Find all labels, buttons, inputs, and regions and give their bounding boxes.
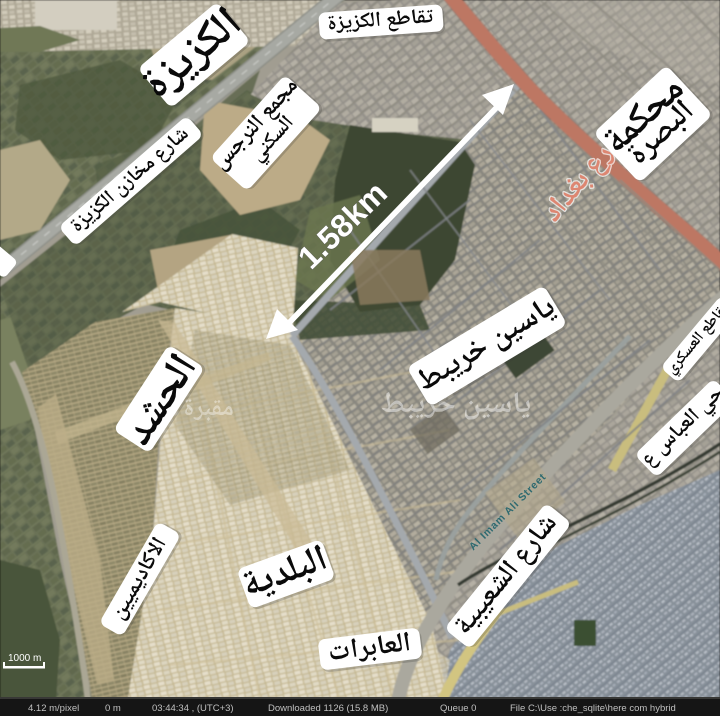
svg-text:1000 m: 1000 m (8, 653, 41, 664)
svg-text:Queue 0: Queue 0 (440, 703, 476, 714)
svg-text:03:44:34 , (UTC+3): 03:44:34 , (UTC+3) (152, 703, 234, 714)
svg-text:4.12 m/pixel: 4.12 m/pixel (28, 703, 79, 714)
svg-text:0 m: 0 m (105, 703, 121, 714)
svg-text:File C:\Use :che_sqlite\here: File C:\Use :che_sqlite\here com hybrid (510, 703, 676, 714)
svg-text:Downloaded 1126 (15.8 MB): Downloaded 1126 (15.8 MB) (268, 703, 388, 714)
